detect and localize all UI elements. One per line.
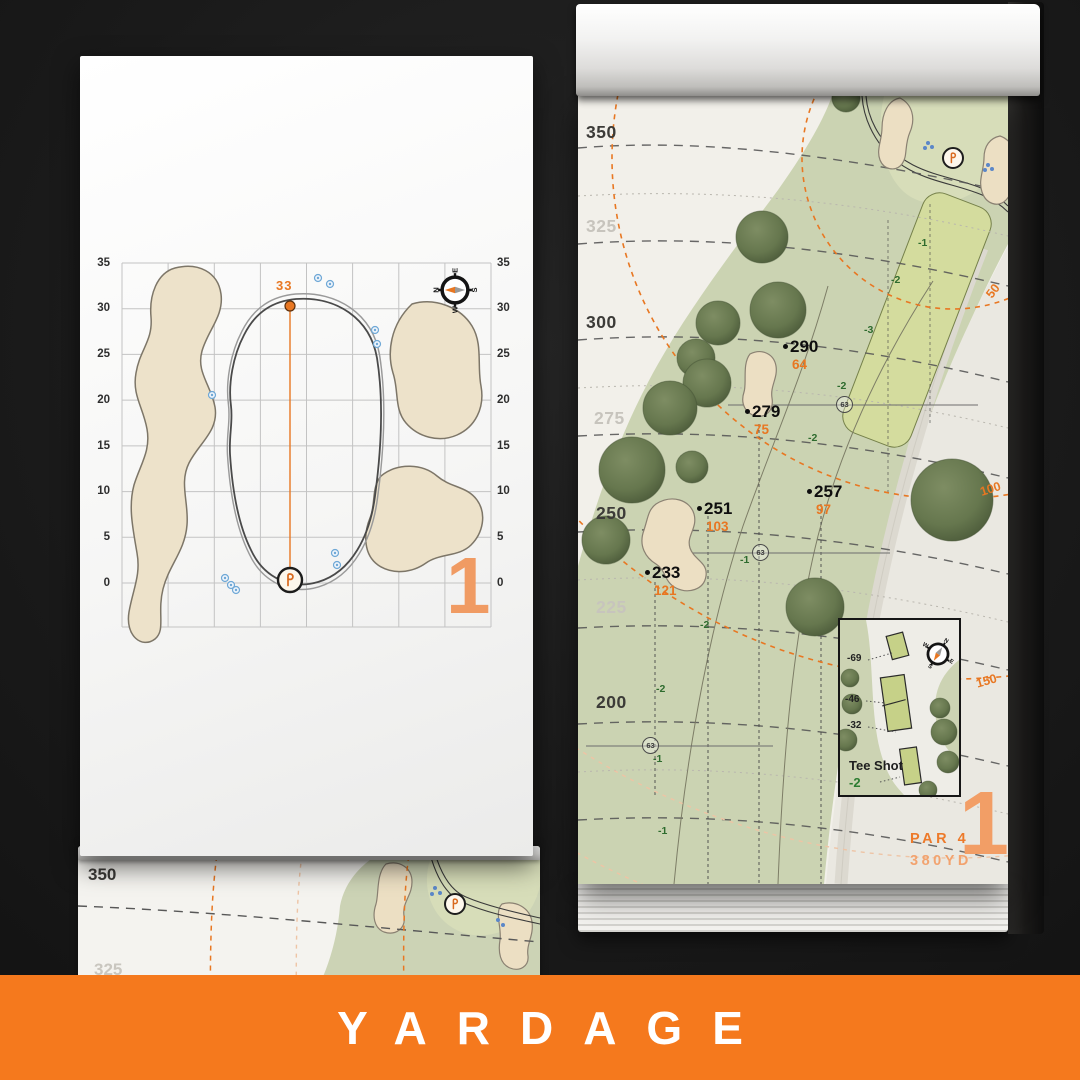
tee-shot-slope: -2 xyxy=(849,775,861,790)
marker-dot-icon xyxy=(783,344,788,349)
tee-distance-label: -32 xyxy=(847,720,861,731)
green-page-bunkers xyxy=(128,266,482,642)
axis-label: 20 xyxy=(497,394,523,406)
axis-label: 35 xyxy=(497,257,523,269)
carry-marker: 290 64 xyxy=(783,338,818,372)
pin-distance-line xyxy=(285,301,295,578)
hole-map-page: 350 325 300 275 250 225 200 290 64 279 7… xyxy=(578,96,1008,884)
slope-label: -2 xyxy=(808,432,817,444)
axis-label: 30 xyxy=(84,302,110,314)
to-pin-distance: 64 xyxy=(792,358,818,372)
axis-label: 20 xyxy=(84,394,110,406)
slope-label: -2 xyxy=(891,274,900,286)
banner-title: YARDAGE xyxy=(307,1001,773,1055)
marker-dot-icon xyxy=(807,489,812,494)
page-stack-edge xyxy=(578,884,1008,932)
yardage-book-mockup: 35 30 25 20 15 10 5 0 35 30 25 20 15 10 … xyxy=(0,0,1080,1080)
axis-label: 0 xyxy=(84,577,110,589)
yardage-banner: YARDAGE xyxy=(0,975,1080,1080)
slope-label: -2 xyxy=(656,683,665,695)
pin-distance-label: 33 xyxy=(276,278,292,293)
flag-pin-icon xyxy=(943,148,963,168)
yardage-side-label: 325 xyxy=(586,216,617,237)
axis-label: 5 xyxy=(497,531,523,543)
carry-marker: 257 97 xyxy=(807,483,842,517)
slope-label: -3 xyxy=(864,324,873,336)
carry-marker: 279 75 xyxy=(745,403,780,437)
marker-dot-icon xyxy=(745,409,750,414)
to-pin-distance: 121 xyxy=(654,584,680,598)
marker-dot-icon xyxy=(697,506,702,511)
axis-label: 30 xyxy=(497,302,523,314)
slope-label: -1 xyxy=(658,825,667,837)
hole-number: 1 xyxy=(959,786,1008,863)
book-spine xyxy=(1008,2,1044,934)
tee-distance-label: -69 xyxy=(847,653,861,664)
to-pin-distance: 103 xyxy=(706,520,732,534)
axis-label: 25 xyxy=(84,348,110,360)
axis-label: 25 xyxy=(497,348,523,360)
flag-pin-icon xyxy=(278,568,302,592)
sprinkler-dots xyxy=(209,275,381,594)
slope-label: -2 xyxy=(837,380,846,392)
yardage-side-label: 225 xyxy=(596,597,627,618)
tee-distance-label: -46 xyxy=(845,694,859,705)
yardage-side-label: 300 xyxy=(586,312,617,333)
slope-label: -1 xyxy=(653,753,662,765)
yardage-side-label: 250 xyxy=(596,503,627,524)
sprinkler-number-badge: 63 xyxy=(752,544,769,561)
compass-w: W xyxy=(451,305,460,313)
flipped-page-roll xyxy=(576,4,1040,96)
yardage-side-label: 350 xyxy=(88,865,116,885)
axis-label: 0 xyxy=(497,577,523,589)
sprinkler-number-badge: 63 xyxy=(642,737,659,754)
hole-number: 1 xyxy=(446,552,491,620)
green-detail-page: 35 30 25 20 15 10 5 0 35 30 25 20 15 10 … xyxy=(80,56,533,856)
axis-label: 5 xyxy=(84,531,110,543)
marker-dot-icon xyxy=(645,570,650,575)
compass-e: E xyxy=(451,268,460,273)
axis-label: 10 xyxy=(497,485,523,497)
compass-n: N xyxy=(432,287,441,292)
yardage-side-label: 350 xyxy=(586,122,617,143)
axis-label: 10 xyxy=(84,485,110,497)
tee-shot-title: Tee Shot xyxy=(849,758,903,773)
carry-marker: 251 103 xyxy=(697,500,732,534)
axis-label: 35 xyxy=(84,257,110,269)
carry-marker: 233 121 xyxy=(645,564,680,598)
tee-shot-inset: -69 -46 -32 Tee Shot -2 N E S W xyxy=(838,618,961,797)
slope-label: -1 xyxy=(918,237,927,249)
axis-label: 15 xyxy=(84,440,110,452)
green-outline xyxy=(227,294,384,590)
yardage-side-label: 275 xyxy=(594,408,625,429)
yardage-side-label: 200 xyxy=(596,692,627,713)
sprinkler-number-badge: 63 xyxy=(836,396,853,413)
axis-label: 15 xyxy=(497,440,523,452)
slope-label: -1 xyxy=(740,554,749,566)
compass-icon: N E S W xyxy=(432,267,478,313)
compass-s: S xyxy=(470,287,478,292)
slope-label: -2 xyxy=(700,619,709,631)
to-pin-distance: 97 xyxy=(816,503,842,517)
green-detail-map-svg xyxy=(80,56,533,856)
to-pin-distance: 75 xyxy=(754,423,780,437)
